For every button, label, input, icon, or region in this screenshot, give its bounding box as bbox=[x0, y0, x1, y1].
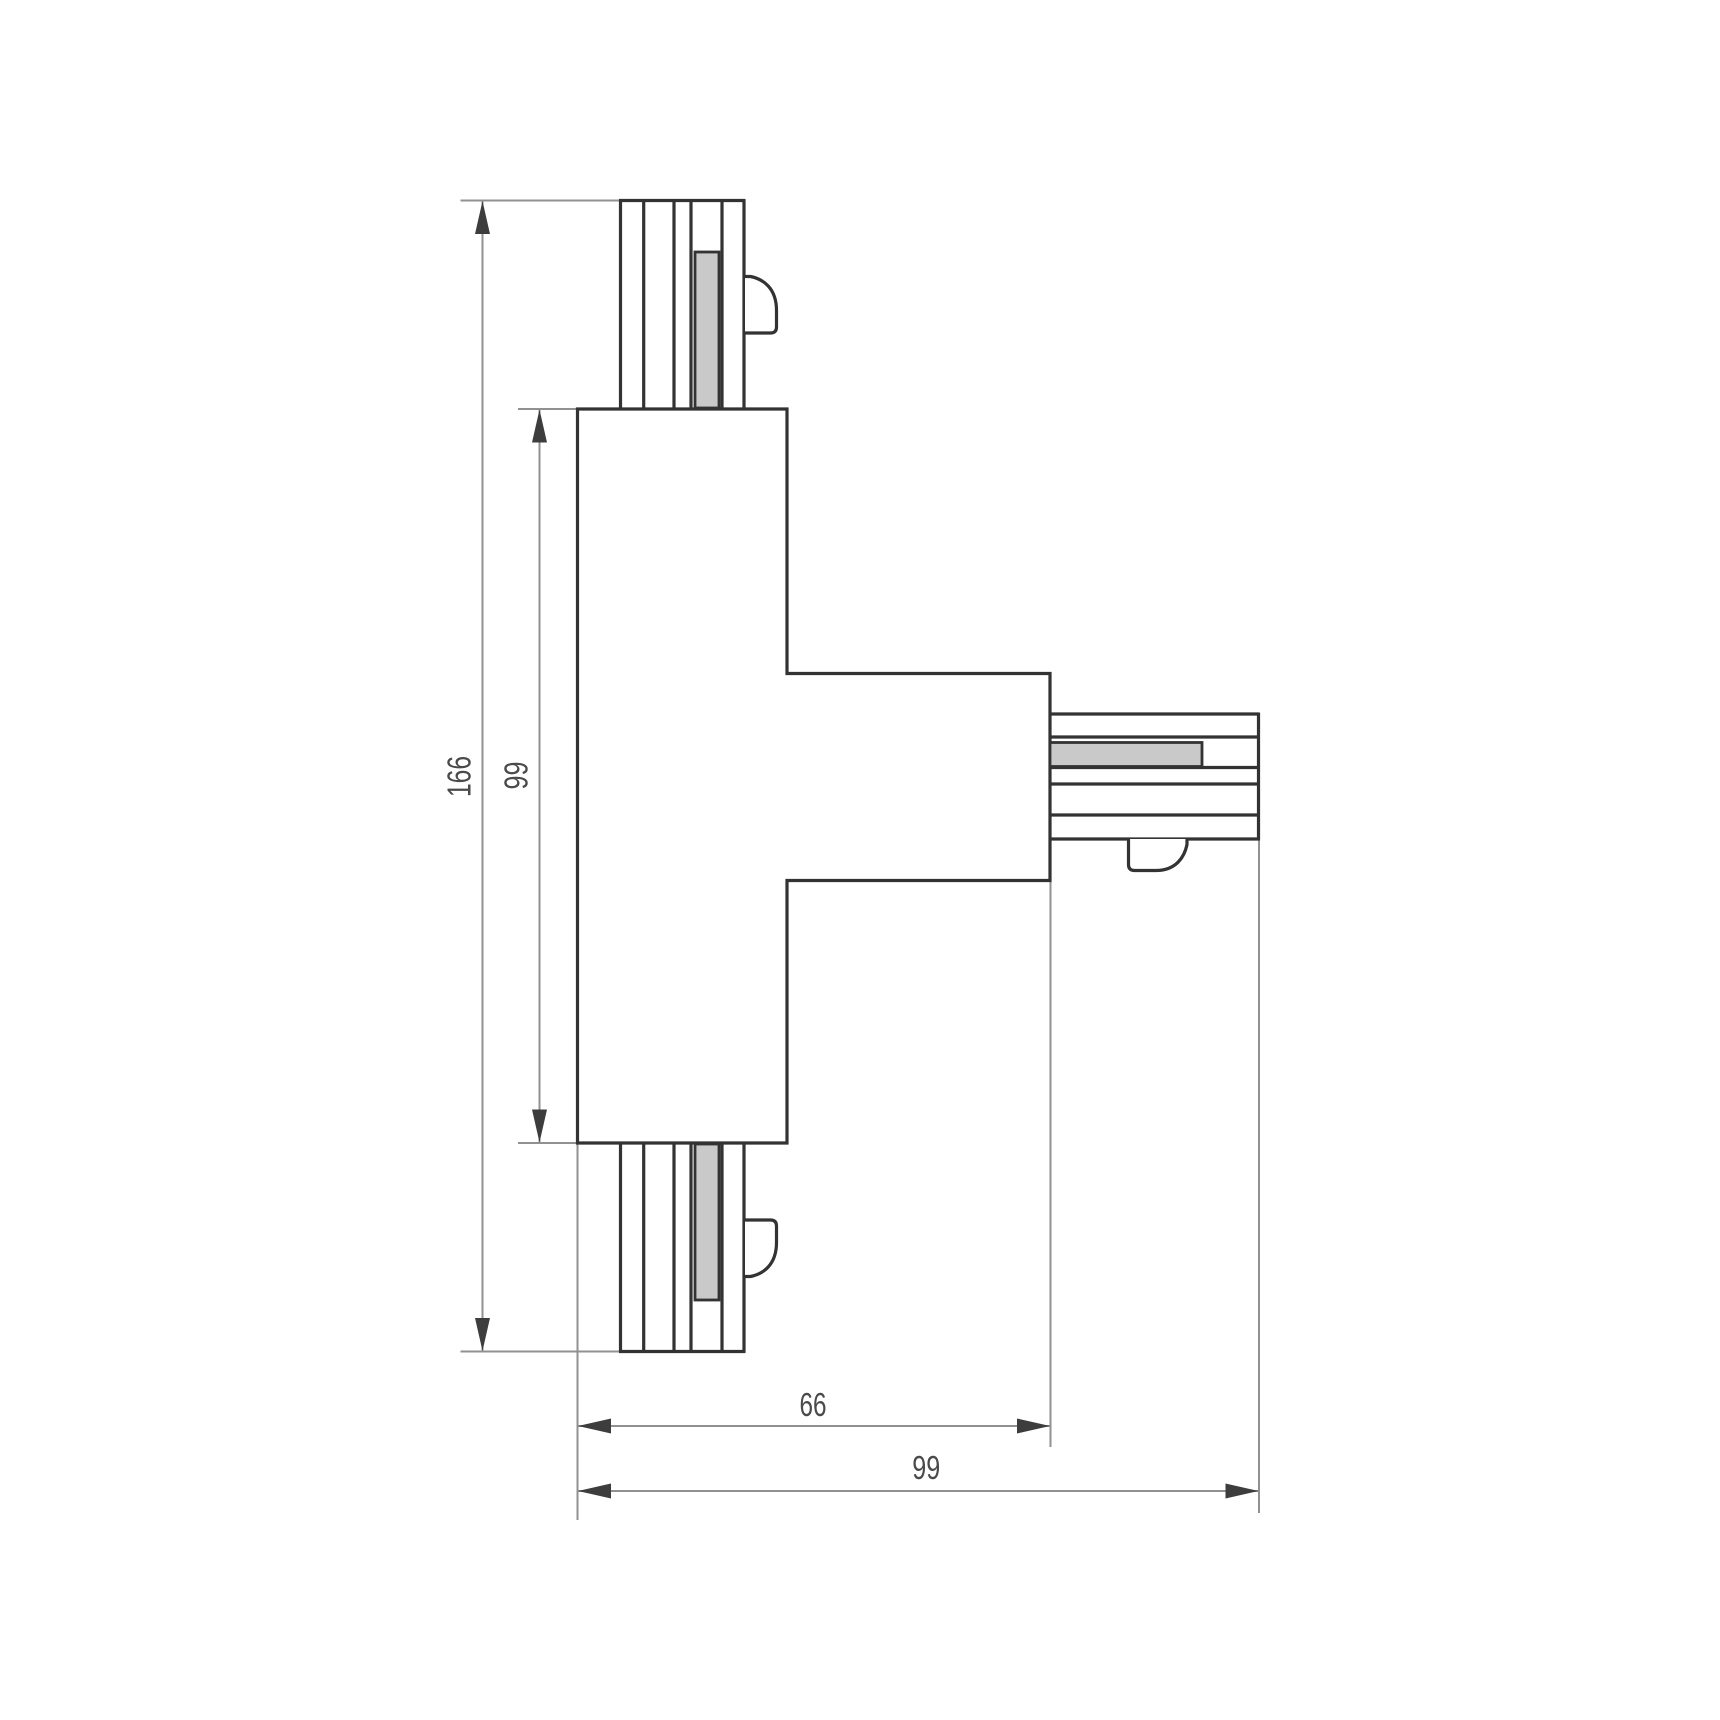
svg-text:99: 99 bbox=[498, 762, 535, 790]
svg-text:99: 99 bbox=[912, 1449, 940, 1486]
svg-text:66: 66 bbox=[800, 1386, 827, 1423]
svg-text:166: 166 bbox=[441, 756, 478, 797]
